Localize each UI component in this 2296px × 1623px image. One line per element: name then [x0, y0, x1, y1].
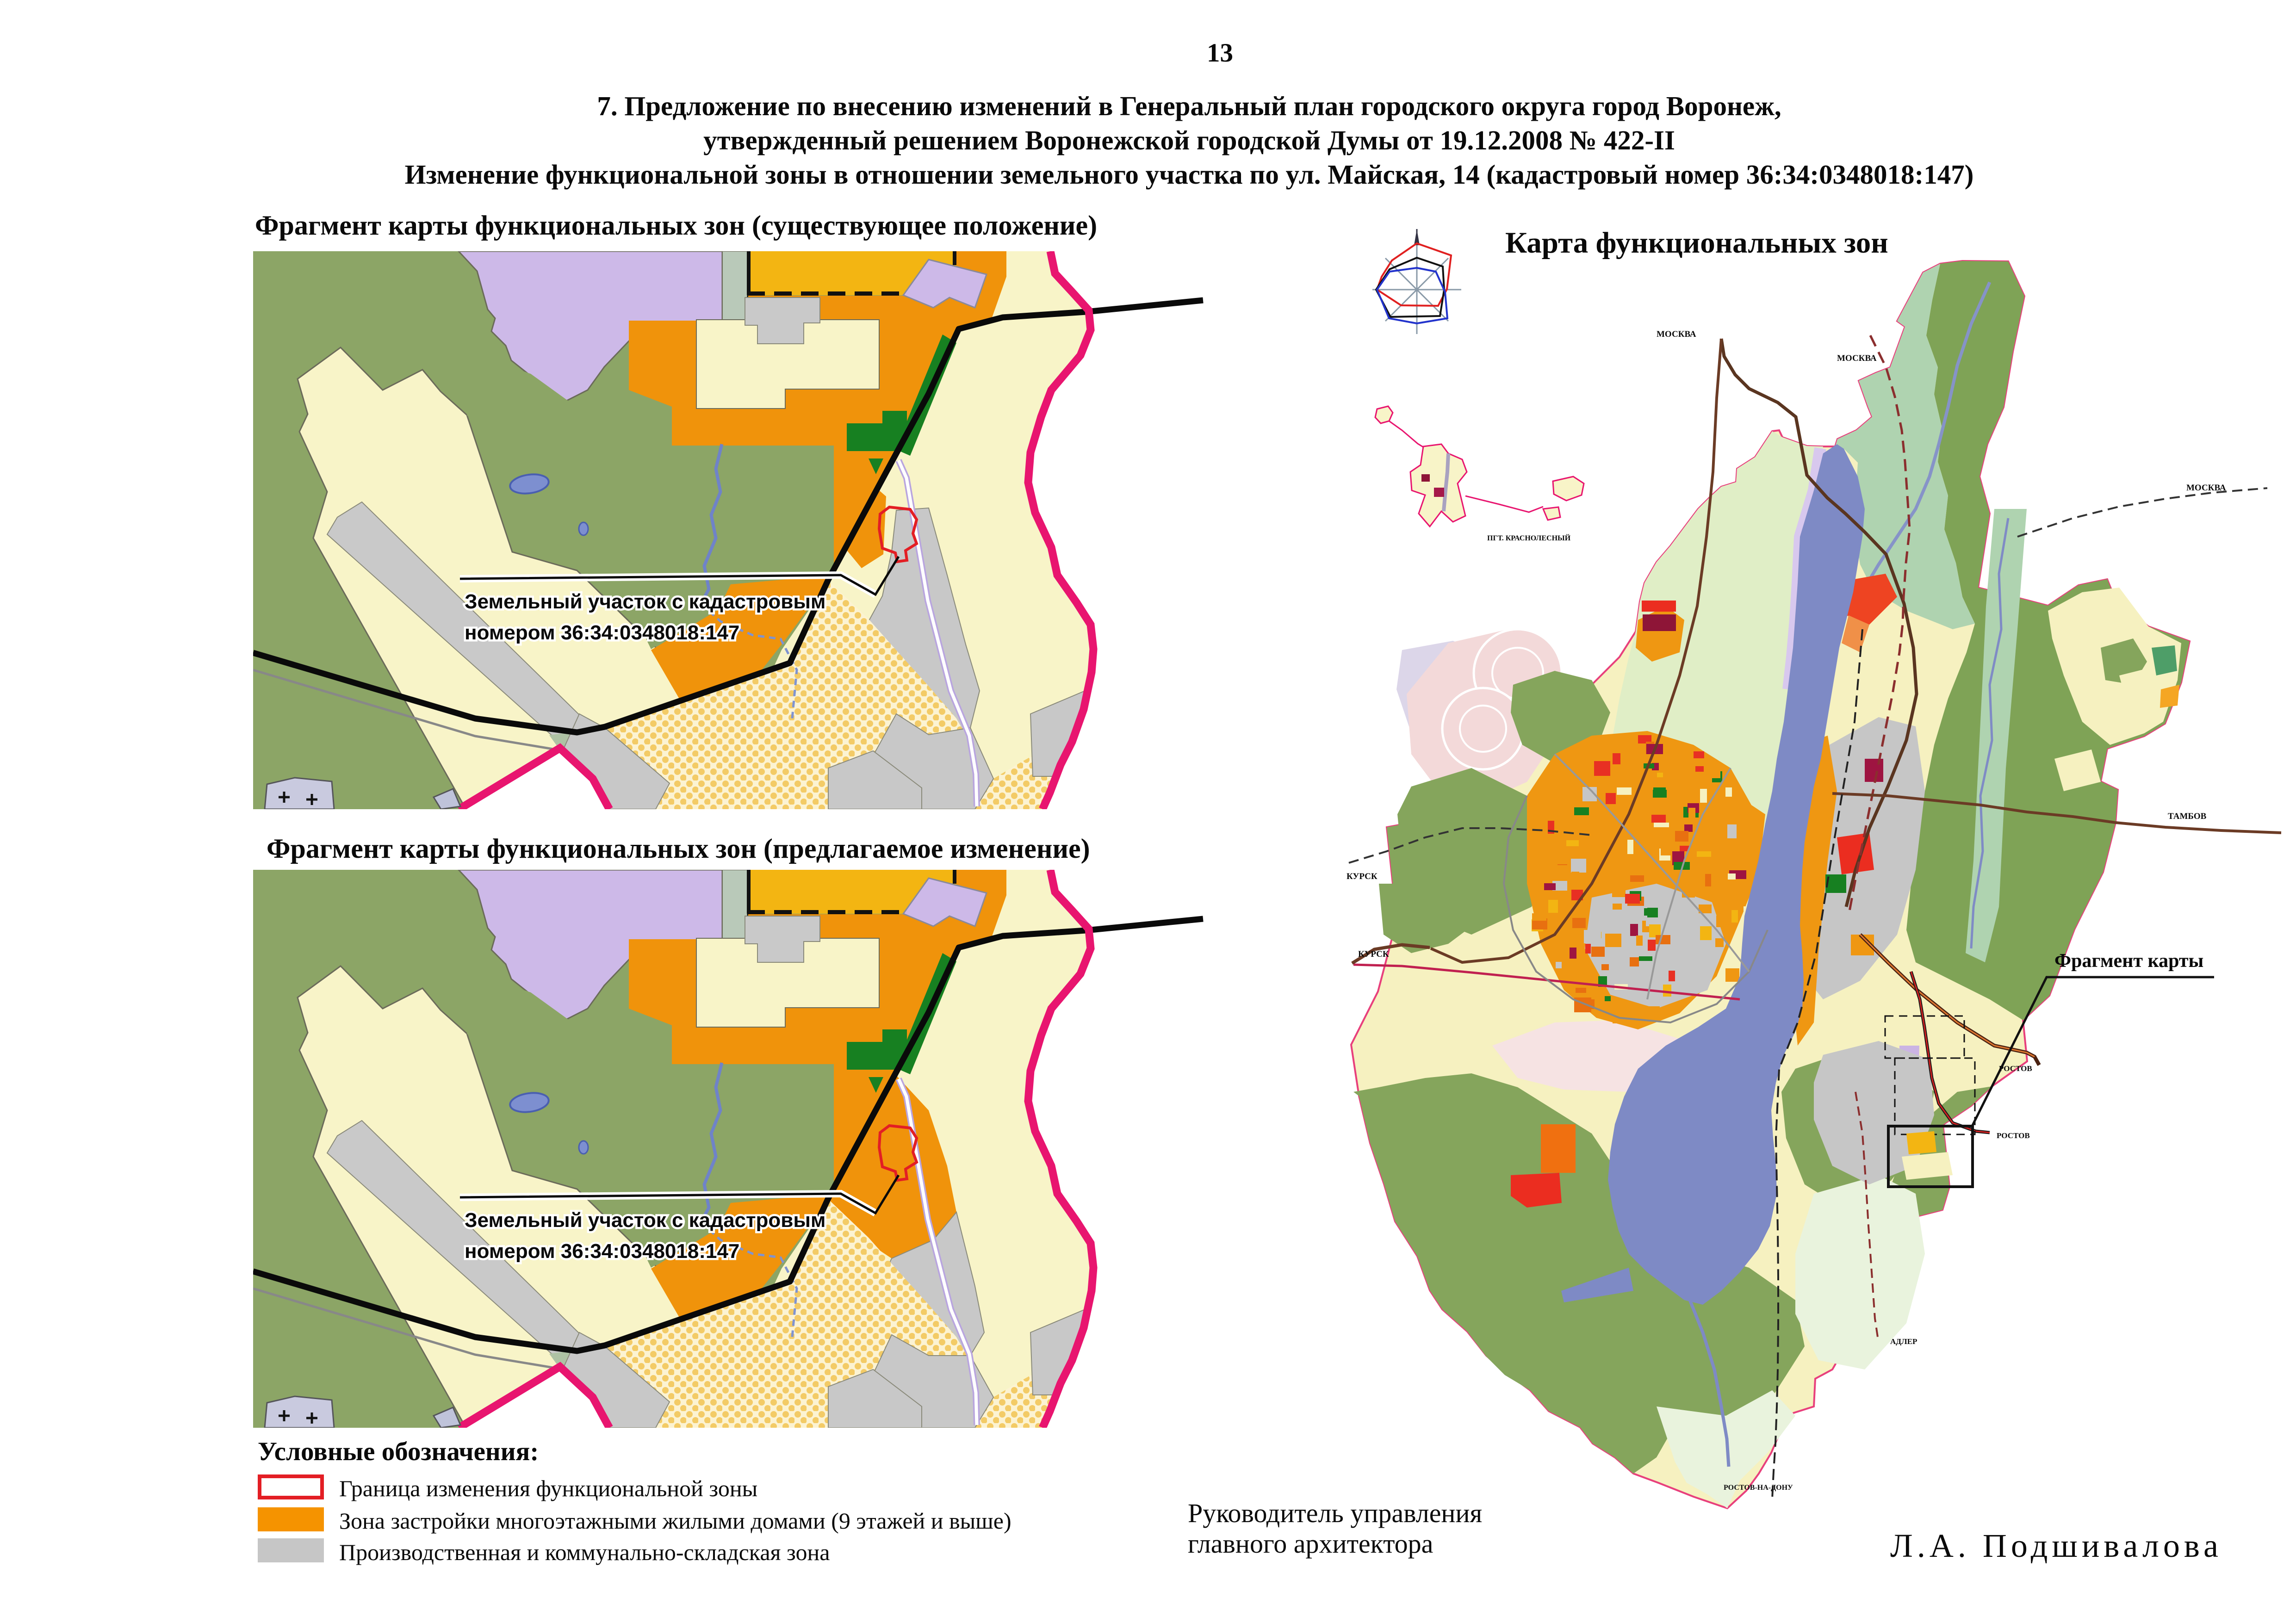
svg-text:АДЛЕР: АДЛЕР	[1890, 1337, 1917, 1346]
svg-text:номером 36:34:0348018:147: номером 36:34:0348018:147	[465, 1240, 739, 1263]
svg-text:ТАМБОВ: ТАМБОВ	[2168, 811, 2207, 821]
svg-text:Фрагмент карты: Фрагмент карты	[2054, 950, 2203, 972]
svg-text:Земельный участок с кадастровы: Земельный участок с кадастровым	[465, 590, 825, 613]
svg-text:Земельный участок с кадастровы: Земельный участок с кадастровым	[465, 1209, 825, 1232]
svg-text:РОСТОВ: РОСТОВ	[1999, 1064, 2032, 1073]
svg-text:МОСКВА: МОСКВА	[1837, 353, 1877, 363]
svg-text:РОСТОВ: РОСТОВ	[1997, 1131, 2030, 1140]
svg-text:МОСКВА: МОСКВА	[2186, 483, 2226, 493]
svg-text:РОСТОВ-НА-ДОНУ: РОСТОВ-НА-ДОНУ	[1724, 1484, 1793, 1492]
svg-text:КУРСК: КУРСК	[1358, 949, 1389, 959]
svg-text:КУРСК: КУРСК	[1347, 872, 1378, 881]
svg-text:ПГТ. КРАСНОЛЕСНЫЙ: ПГТ. КРАСНОЛЕСНЫЙ	[1487, 533, 1571, 542]
svg-text:номером 36:34:0348018:147: номером 36:34:0348018:147	[465, 621, 739, 644]
svg-text:МОСКВА: МОСКВА	[1657, 329, 1696, 339]
